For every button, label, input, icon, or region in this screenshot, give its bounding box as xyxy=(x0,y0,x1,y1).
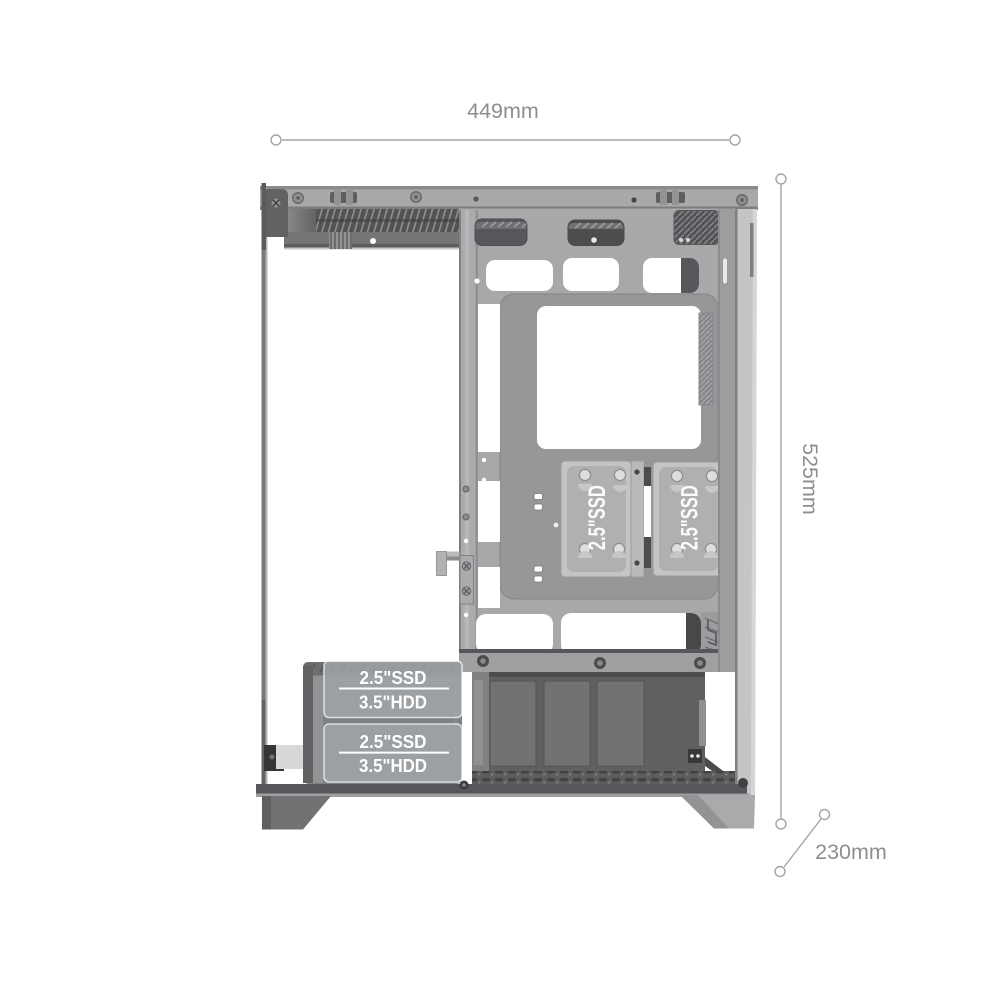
svg-text:3.5"HDD: 3.5"HDD xyxy=(359,755,427,776)
svg-text:230mm: 230mm xyxy=(815,840,887,864)
svg-text:2.5"SSD: 2.5"SSD xyxy=(677,485,704,550)
svg-text:2.5"SSD: 2.5"SSD xyxy=(584,485,611,550)
svg-text:525mm: 525mm xyxy=(798,443,822,515)
svg-text:2.5"SSD: 2.5"SSD xyxy=(360,731,427,752)
svg-text:3.5"HDD: 3.5"HDD xyxy=(359,692,427,713)
svg-text:2.5"SSD: 2.5"SSD xyxy=(360,667,427,688)
svg-text:449mm: 449mm xyxy=(467,99,539,123)
